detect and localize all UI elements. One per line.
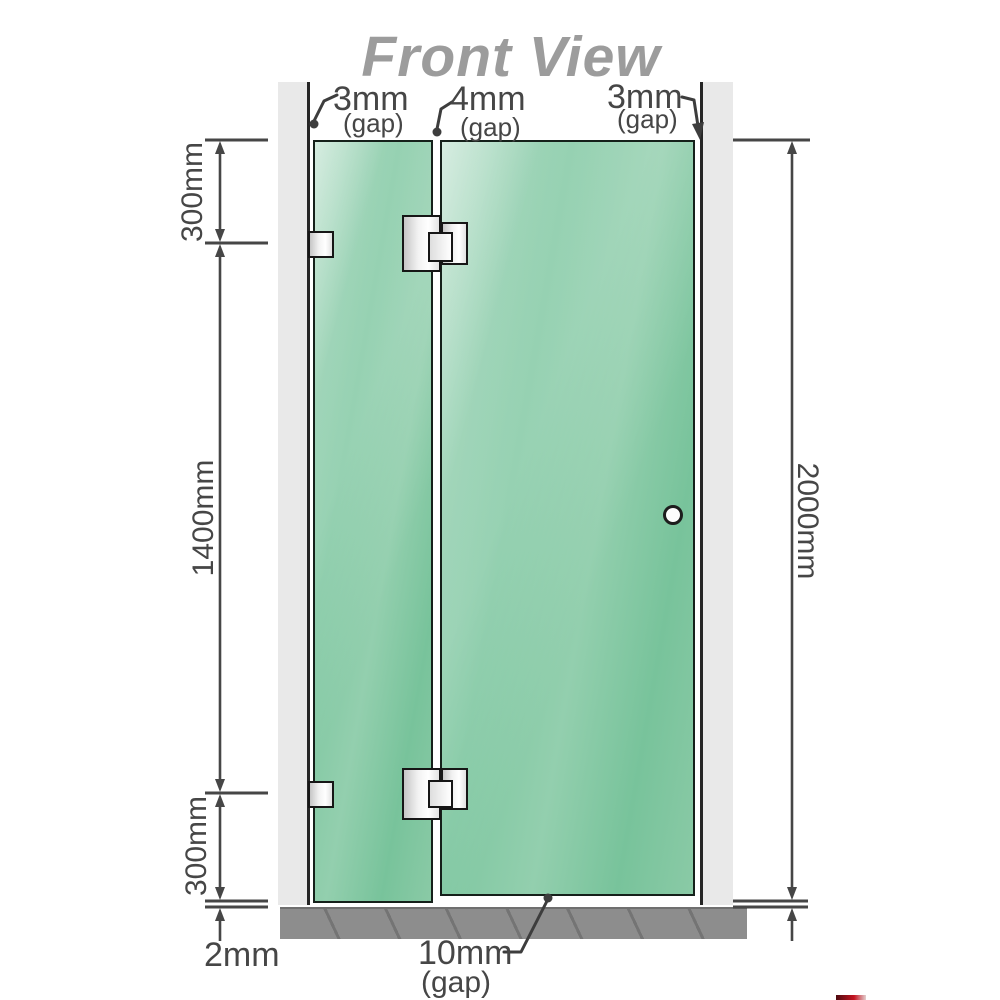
hinge-top-knuckle (428, 232, 453, 262)
hinge-bottom-knuckle (428, 780, 453, 808)
left-wall (278, 82, 310, 905)
dim-label-left-top: 300mm (178, 142, 208, 242)
dim-label-left-middle: 1400mm (189, 460, 219, 577)
wall-bracket-top (308, 231, 334, 258)
gap-label-bottom: 10mm (418, 936, 512, 970)
floor-base (280, 907, 747, 939)
wall-bracket-bottom (308, 781, 334, 808)
door-glass-panel (440, 140, 695, 896)
gap-label-top-middle-suffix: (gap) (460, 114, 521, 140)
door-knob (663, 505, 683, 525)
gap-label-top-right-suffix: (gap) (617, 106, 678, 132)
gap-label-top-middle: 4mm (450, 82, 526, 116)
right-wall (700, 82, 733, 905)
dim-label-right-total: 2000mm (792, 463, 822, 580)
shower-screen-diagram: Front View (0, 0, 1000, 1000)
logo-fragment (836, 995, 866, 1000)
gap-label-top-left-suffix: (gap) (343, 110, 404, 136)
floor-offset-label: 2mm (204, 938, 280, 972)
dim-label-left-bottom: 300mm (182, 796, 212, 896)
gap-label-bottom-suffix: (gap) (421, 968, 491, 998)
